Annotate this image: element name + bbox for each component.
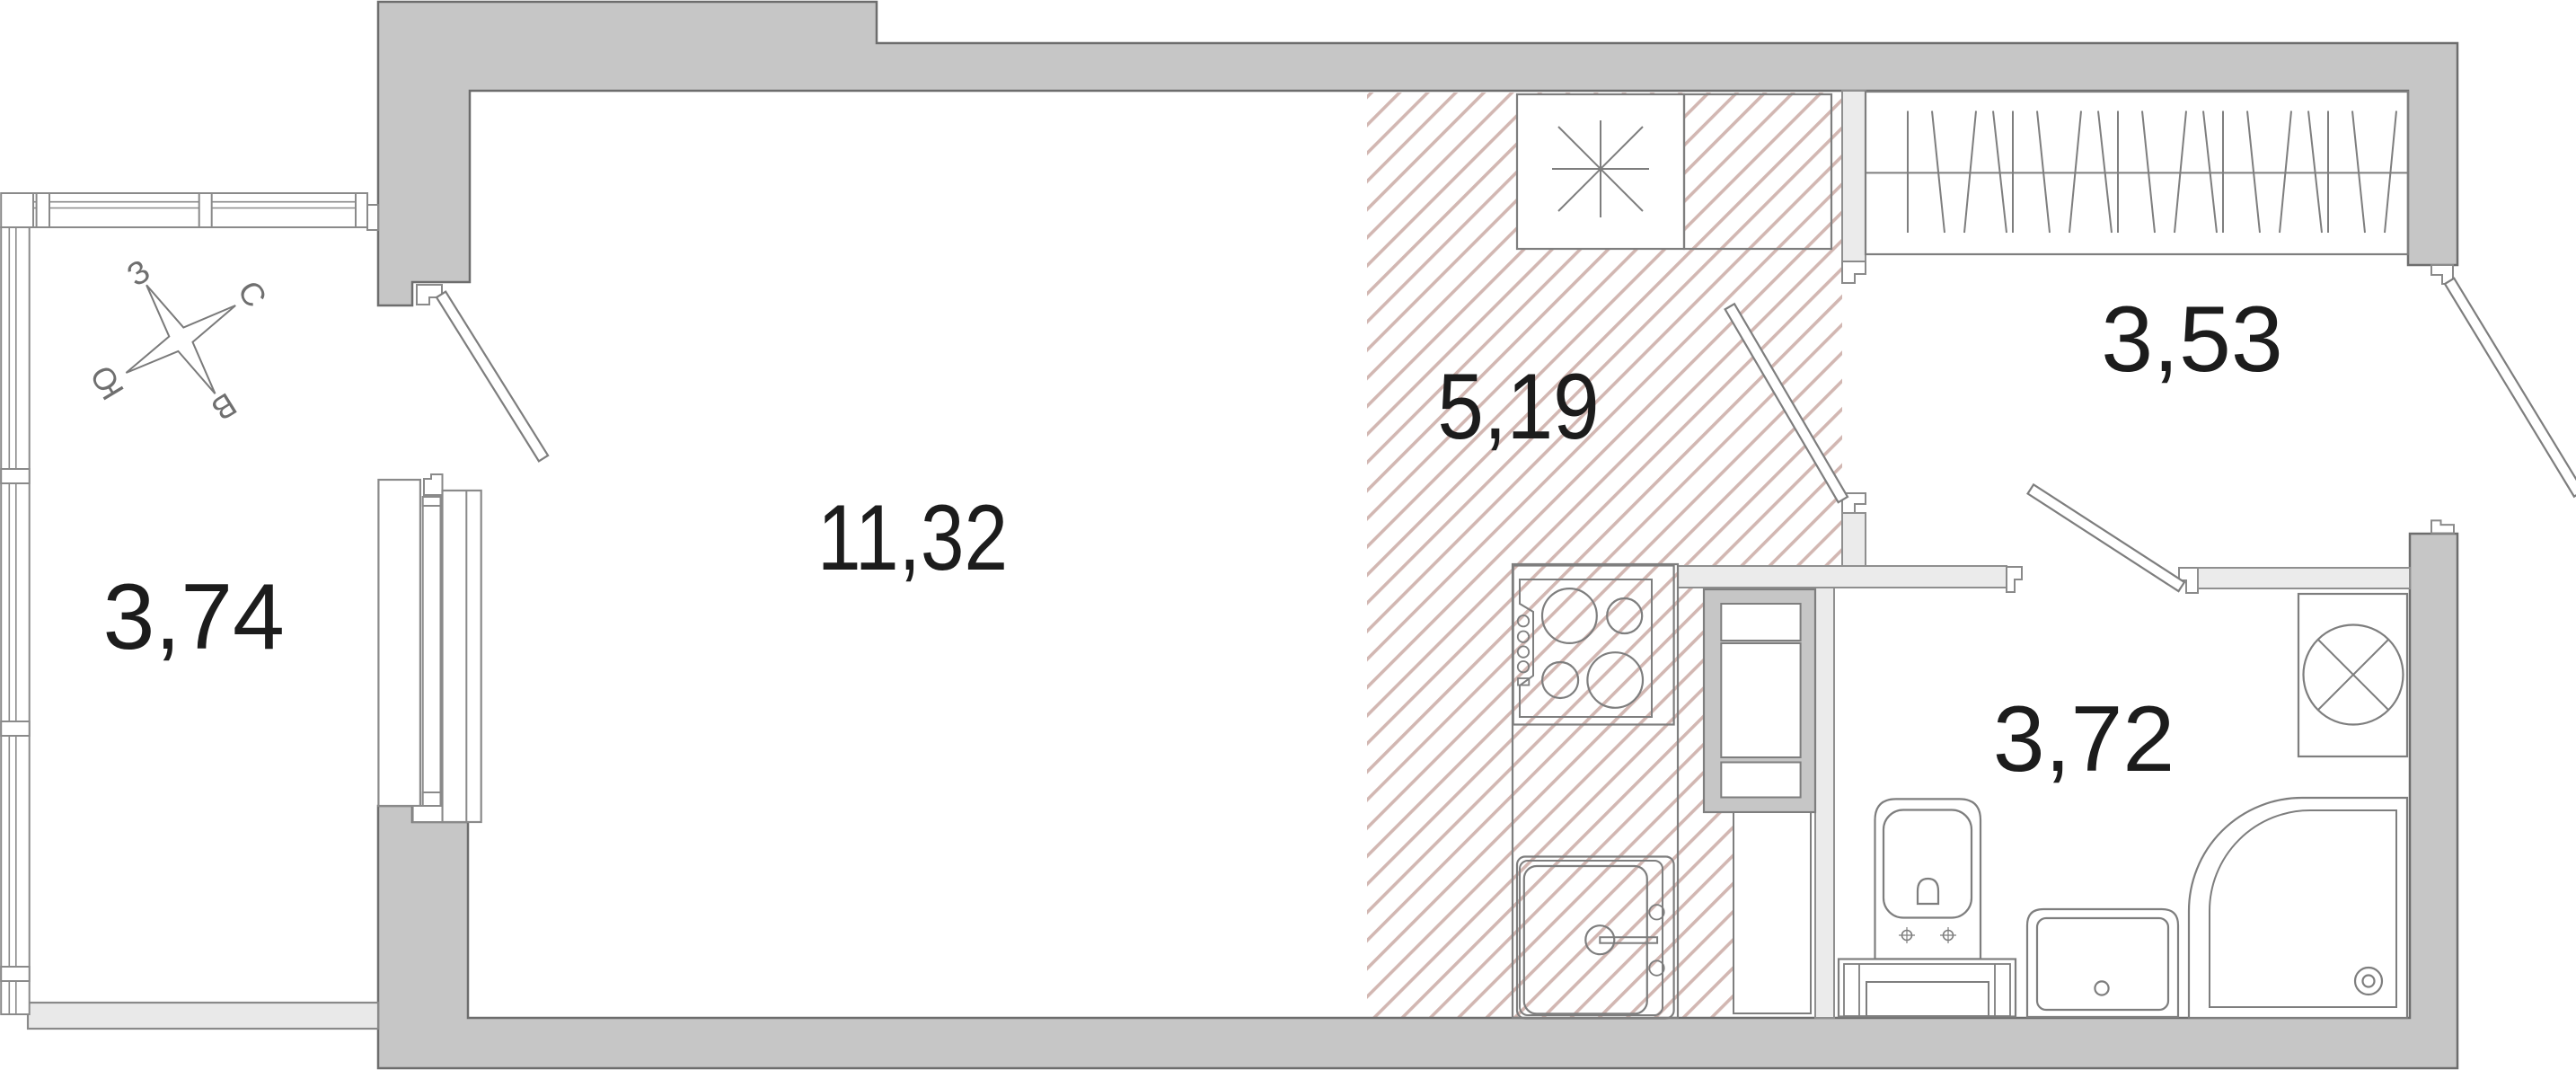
svg-text:3,72: 3,72: [1993, 687, 2175, 791]
svg-text:11,32: 11,32: [817, 486, 1008, 590]
svg-text:3,74: 3,74: [102, 565, 284, 669]
svg-text:3,53: 3,53: [2101, 287, 2282, 392]
svg-text:5,19: 5,19: [1437, 354, 1599, 458]
